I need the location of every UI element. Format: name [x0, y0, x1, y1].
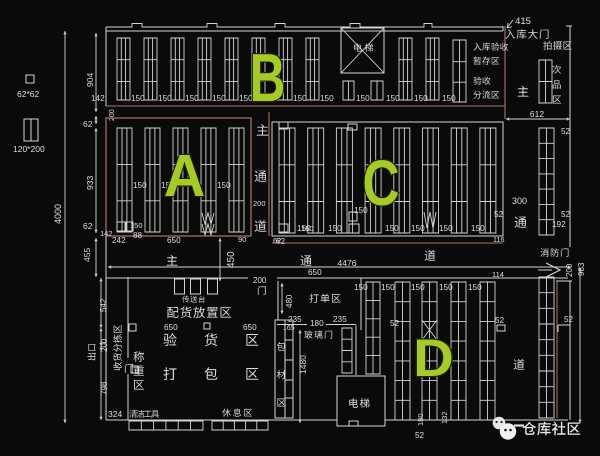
svg-text:150: 150: [354, 283, 368, 292]
svg-text:612: 612: [530, 109, 544, 119]
svg-text:C: C: [363, 149, 400, 220]
svg-text:52: 52: [561, 210, 571, 219]
svg-text:4000: 4000: [53, 204, 63, 224]
svg-text:62: 62: [83, 119, 93, 129]
svg-text:324: 324: [108, 409, 122, 419]
svg-text:52: 52: [561, 127, 571, 136]
svg-text:150: 150: [217, 181, 231, 190]
svg-text:150: 150: [414, 94, 428, 103]
svg-text:62: 62: [83, 221, 93, 231]
svg-text:650: 650: [308, 268, 322, 277]
svg-text:150: 150: [328, 224, 342, 233]
svg-text:933: 933: [85, 176, 95, 190]
svg-text:650: 650: [164, 323, 178, 332]
svg-text:52: 52: [390, 319, 400, 328]
svg-text:116: 116: [493, 235, 504, 244]
svg-text:150: 150: [131, 94, 145, 103]
svg-text:88: 88: [133, 231, 143, 240]
svg-text:455: 455: [82, 248, 92, 262]
svg-text:150: 150: [381, 283, 395, 292]
svg-text:4476: 4476: [338, 258, 357, 268]
svg-text:150: 150: [386, 94, 400, 103]
svg-text:52: 52: [495, 316, 505, 325]
svg-text:180: 180: [416, 413, 425, 426]
svg-text:150: 150: [468, 283, 482, 292]
svg-text:52: 52: [564, 315, 574, 324]
svg-text:114: 114: [492, 270, 504, 279]
svg-text:480: 480: [285, 294, 294, 308]
svg-text:62*62: 62*62: [17, 89, 39, 99]
svg-text:150: 150: [411, 224, 425, 233]
svg-text:235: 235: [333, 315, 347, 324]
svg-text:52: 52: [415, 431, 425, 440]
svg-text:192: 192: [552, 220, 566, 229]
svg-text:62: 62: [273, 236, 281, 245]
svg-text:1480: 1480: [298, 355, 308, 374]
svg-text:150: 150: [130, 221, 143, 230]
svg-text:450: 450: [226, 251, 237, 268]
svg-text:200: 200: [253, 199, 266, 208]
svg-text:650: 650: [167, 236, 181, 245]
svg-text:180: 180: [310, 319, 324, 328]
svg-text:542: 542: [99, 298, 108, 312]
svg-text:650: 650: [243, 323, 257, 332]
svg-text:904: 904: [85, 73, 95, 87]
svg-text:983: 983: [577, 262, 586, 276]
svg-text:150: 150: [301, 224, 314, 233]
svg-text:150: 150: [385, 224, 399, 233]
svg-text:52: 52: [494, 210, 504, 219]
svg-text:150: 150: [439, 283, 453, 292]
svg-text:150: 150: [439, 224, 453, 233]
svg-text:150: 150: [133, 181, 147, 190]
svg-text:200: 200: [253, 276, 267, 285]
svg-text:B: B: [250, 39, 286, 116]
svg-text:D: D: [413, 328, 454, 387]
svg-text:300: 300: [512, 196, 527, 206]
svg-text:90: 90: [238, 235, 246, 244]
svg-text:150: 150: [293, 94, 307, 103]
svg-text:200: 200: [109, 109, 116, 121]
svg-text:A: A: [164, 143, 205, 209]
svg-text:200: 200: [565, 263, 574, 277]
svg-text:150: 150: [411, 283, 425, 292]
svg-text:120*200: 120*200: [13, 144, 45, 154]
svg-text:415: 415: [515, 16, 531, 27]
svg-text:132: 132: [440, 411, 449, 424]
svg-text:142: 142: [91, 94, 105, 103]
svg-text:150: 150: [320, 94, 334, 103]
svg-text:150: 150: [471, 224, 485, 233]
svg-text:150: 150: [185, 94, 199, 103]
svg-text:150: 150: [158, 94, 172, 103]
svg-text:150: 150: [212, 94, 226, 103]
svg-text:150: 150: [356, 94, 370, 103]
svg-text:242: 242: [112, 236, 126, 245]
